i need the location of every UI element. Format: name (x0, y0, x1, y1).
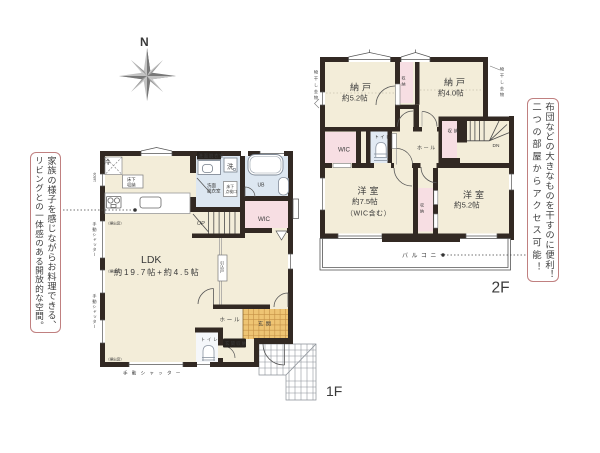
svg-text:16509: 16509 (93, 172, 97, 182)
svg-text:収納: 収納 (420, 202, 425, 215)
svg-text:（掃出窓）: （掃出窓） (106, 357, 124, 362)
svg-text:床下: 床下 (227, 184, 235, 189)
svg-text:点検口: 点検口 (226, 189, 238, 194)
svg-text:トイレ: トイレ (201, 337, 220, 342)
svg-text:物干し金物: 物干し金物 (499, 66, 505, 99)
svg-text:約19.7帖+約4.5帖: 約19.7帖+約4.5帖 (114, 267, 200, 277)
svg-text:引込戸: 引込戸 (220, 260, 225, 274)
svg-text:UP: UP (197, 221, 205, 227)
svg-text:納戸: 納戸 (350, 82, 374, 93)
svg-text:収納: 収納 (127, 182, 136, 189)
svg-text:玄関収納: 玄関収納 (225, 340, 247, 347)
svg-text:約7.5帖: 約7.5帖 (352, 196, 378, 206)
svg-text:2F: 2F (492, 280, 510, 297)
svg-text:N: N (140, 35, 149, 49)
svg-text:手動シャッター: 手動シャッター (93, 221, 98, 258)
svg-text:UB: UB (258, 183, 266, 189)
svg-text:トイレ: トイレ (375, 135, 392, 140)
svg-text:手動シャッター: 手動シャッター (123, 370, 185, 377)
svg-text:WIC: WIC (338, 147, 351, 154)
svg-text:洋室: 洋室 (463, 189, 487, 200)
svg-text:（掃出窓）: （掃出窓） (106, 221, 124, 226)
svg-text:手動シャッター: 手動シャッター (93, 293, 98, 330)
svg-text:収納: 収納 (448, 128, 461, 135)
svg-text:納戸: 納戸 (444, 77, 468, 88)
svg-text:玄関: 玄関 (258, 320, 274, 328)
svg-text:1F: 1F (326, 383, 342, 399)
svg-text:約5.2帖: 約5.2帖 (342, 93, 368, 103)
svg-text:LDK: LDK (141, 254, 161, 266)
svg-text:DN: DN (493, 143, 500, 149)
svg-text:ホール: ホール (220, 317, 242, 324)
svg-text:ホール: ホール (417, 146, 437, 152)
svg-text:約4.0帖: 約4.0帖 (438, 88, 464, 98)
svg-text:物干し金物: 物干し金物 (313, 69, 319, 102)
svg-text:収納: 収納 (402, 75, 407, 88)
svg-text:（WIC含む）: （WIC含む） (346, 209, 391, 218)
svg-text:（掃出窓）: （掃出窓） (106, 269, 124, 274)
svg-text:洋室: 洋室 (358, 185, 382, 196)
svg-text:洗: 洗 (227, 162, 234, 171)
svg-text:約5.2帖: 約5.2帖 (454, 200, 480, 210)
svg-text:洗面脱衣室: 洗面脱衣室 (199, 153, 225, 160)
svg-text:WIC: WIC (258, 216, 271, 223)
svg-text:冷: 冷 (104, 157, 111, 166)
